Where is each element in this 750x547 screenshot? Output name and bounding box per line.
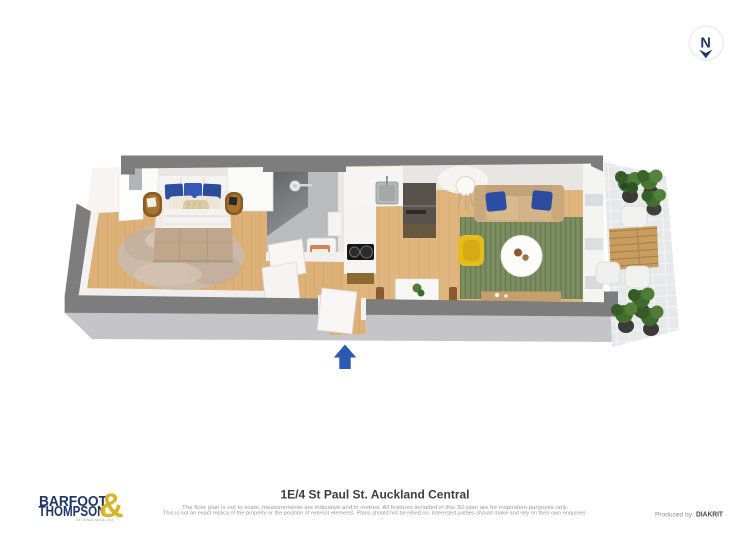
svg-text:1E/4 St Paul St. Auckland Cent: 1E/4 St Paul St. Auckland Central [281,488,470,502]
svg-text:This is not an exact replica o: This is not an exact replica of the prop… [163,511,587,517]
svg-text:N: N [700,36,710,52]
svg-text:Produced by: Produced by [655,511,693,518]
svg-text:DIAKRIT: DIAKRIT [696,512,724,519]
svg-text:NZ OWNED SINCE 1923: NZ OWNED SINCE 1923 [76,518,114,522]
